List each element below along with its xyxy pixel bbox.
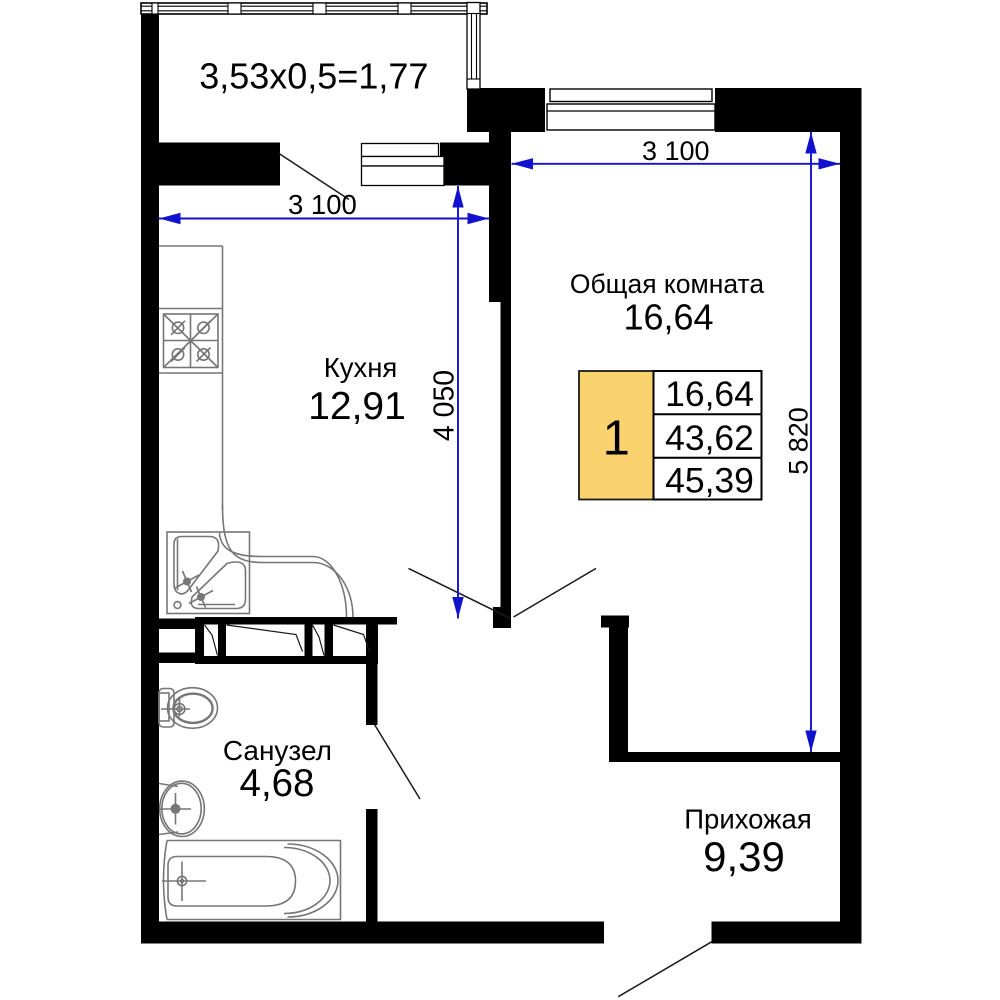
svg-text:43,62: 43,62 <box>665 418 754 458</box>
svg-text:9,39: 9,39 <box>703 833 785 880</box>
svg-text:Прихожая: Прихожая <box>684 803 811 834</box>
svg-text:3,53x0,5=1,77: 3,53x0,5=1,77 <box>199 56 428 97</box>
svg-text:12,91: 12,91 <box>308 385 406 428</box>
svg-text:5 820: 5 820 <box>784 407 814 475</box>
svg-text:3 100: 3 100 <box>288 189 357 220</box>
svg-text:Общая комната: Общая комната <box>570 269 765 299</box>
svg-text:Кухня: Кухня <box>324 352 398 383</box>
svg-text:3 100: 3 100 <box>642 136 710 166</box>
svg-text:16,64: 16,64 <box>623 297 713 338</box>
svg-text:16,64: 16,64 <box>665 374 754 414</box>
svg-text:4 050: 4 050 <box>429 370 461 441</box>
svg-text:1: 1 <box>603 412 630 466</box>
svg-text:45,39: 45,39 <box>665 461 754 501</box>
svg-text:4,68: 4,68 <box>240 762 315 805</box>
